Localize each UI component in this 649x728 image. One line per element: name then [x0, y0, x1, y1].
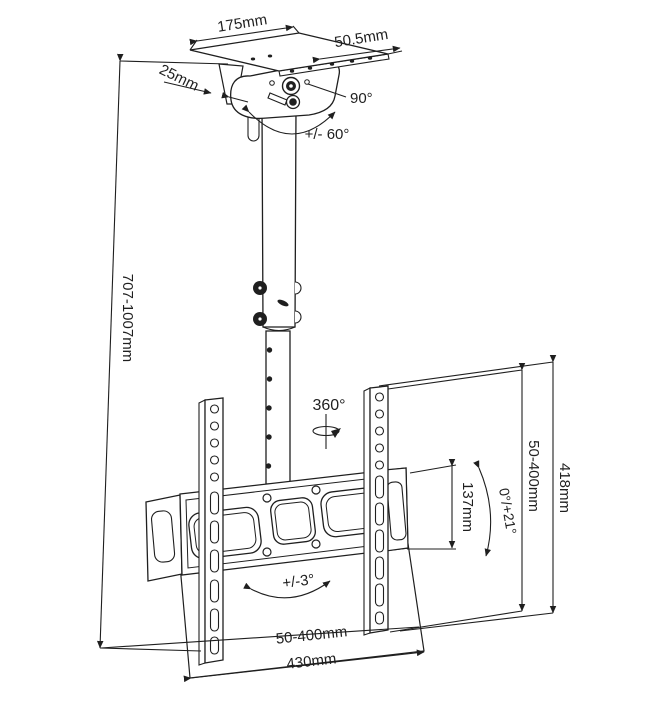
label-bracket-height: 137mm — [459, 482, 476, 532]
vesa-rail-left — [199, 398, 223, 665]
label-vesa-vertical: 50-400mm — [525, 440, 542, 512]
dim-bracket-height — [407, 465, 456, 549]
label-swivel-angle: 90° — [350, 90, 373, 107]
label-rotation: 360° — [312, 397, 345, 414]
label-height-range: 707-1007mm — [119, 274, 136, 362]
vesa-rail-right — [364, 386, 388, 635]
diagram-canvas: 175mm 50.5mm 25mm 90° +/- 60° 707-1007mm… — [0, 0, 649, 728]
label-vesa-horizontal: 50-400mm — [275, 623, 348, 647]
label-total-width: 430mm — [286, 650, 338, 673]
dim-vesa-horizontal — [101, 627, 419, 648]
crossbar-cutout-center — [270, 497, 317, 546]
telescopic-pole — [253, 108, 301, 484]
arc-tilt-range — [479, 468, 491, 556]
rotation-symbol-icon — [313, 414, 341, 449]
label-level-range: +/-3° — [281, 571, 315, 592]
label-swivel-range: +/- 60° — [305, 126, 350, 143]
ceiling-mount-diagram: 175mm 50.5mm 25mm 90° +/- 60° 707-1007mm… — [0, 0, 649, 728]
pole-outer-tube — [262, 108, 296, 327]
label-plate-edge: 25mm — [157, 61, 202, 95]
label-tilt-range: 0°/+21° — [496, 487, 520, 536]
label-total-height: 418mm — [556, 463, 573, 513]
